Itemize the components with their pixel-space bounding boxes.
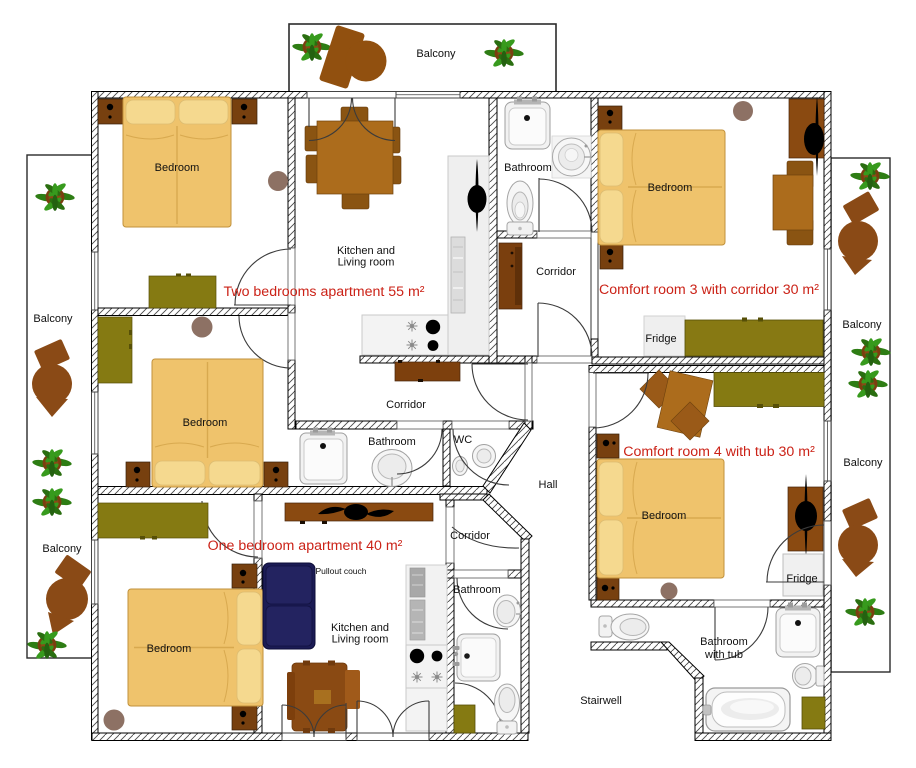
svg-text:Bathroom: Bathroom xyxy=(368,436,416,448)
svg-text:Fridge: Fridge xyxy=(645,333,676,345)
svg-text:Fridge: Fridge xyxy=(786,573,817,585)
svg-text:Bedroom: Bedroom xyxy=(147,643,192,655)
svg-text:Bedroom: Bedroom xyxy=(642,510,687,522)
svg-text:Balcony: Balcony xyxy=(843,457,883,469)
svg-text:Bathroom: Bathroom xyxy=(700,636,748,648)
svg-text:Bathroom: Bathroom xyxy=(453,584,501,596)
svg-text:Kitchen and: Kitchen and xyxy=(337,245,395,257)
svg-text:Stairwell: Stairwell xyxy=(580,695,622,707)
svg-text:Hall: Hall xyxy=(539,479,558,491)
svg-text:Bedroom: Bedroom xyxy=(155,162,200,174)
svg-text:Comfort room 4 with tub 30 m²: Comfort room 4 with tub 30 m² xyxy=(623,444,815,460)
svg-text:One bedroom apartment 40 m²: One bedroom apartment 40 m² xyxy=(208,538,403,554)
svg-text:Living room: Living room xyxy=(332,634,389,646)
svg-text:Comfort room 3 with corridor 3: Comfort room 3 with corridor 30 m² xyxy=(599,282,819,298)
svg-text:Corridor: Corridor xyxy=(450,530,490,542)
svg-text:Bathroom: Bathroom xyxy=(504,162,552,174)
svg-text:Balcony: Balcony xyxy=(42,543,82,555)
svg-text:Balcony: Balcony xyxy=(33,313,73,325)
svg-text:Balcony: Balcony xyxy=(416,48,456,60)
svg-text:Corridor: Corridor xyxy=(536,266,576,278)
svg-text:Two bedrooms apartment 55 m²: Two bedrooms apartment 55 m² xyxy=(223,284,424,300)
svg-text:Bedroom: Bedroom xyxy=(183,417,228,429)
svg-text:Balcony: Balcony xyxy=(842,319,882,331)
svg-text:Pullout couch: Pullout couch xyxy=(315,566,366,576)
svg-text:Kitchen and: Kitchen and xyxy=(331,622,389,634)
svg-text:Living room: Living room xyxy=(338,257,395,269)
svg-text:WC: WC xyxy=(454,434,472,446)
svg-text:with tub: with tub xyxy=(704,649,743,661)
svg-text:Corridor: Corridor xyxy=(386,399,426,411)
svg-text:Bedroom: Bedroom xyxy=(648,182,693,194)
